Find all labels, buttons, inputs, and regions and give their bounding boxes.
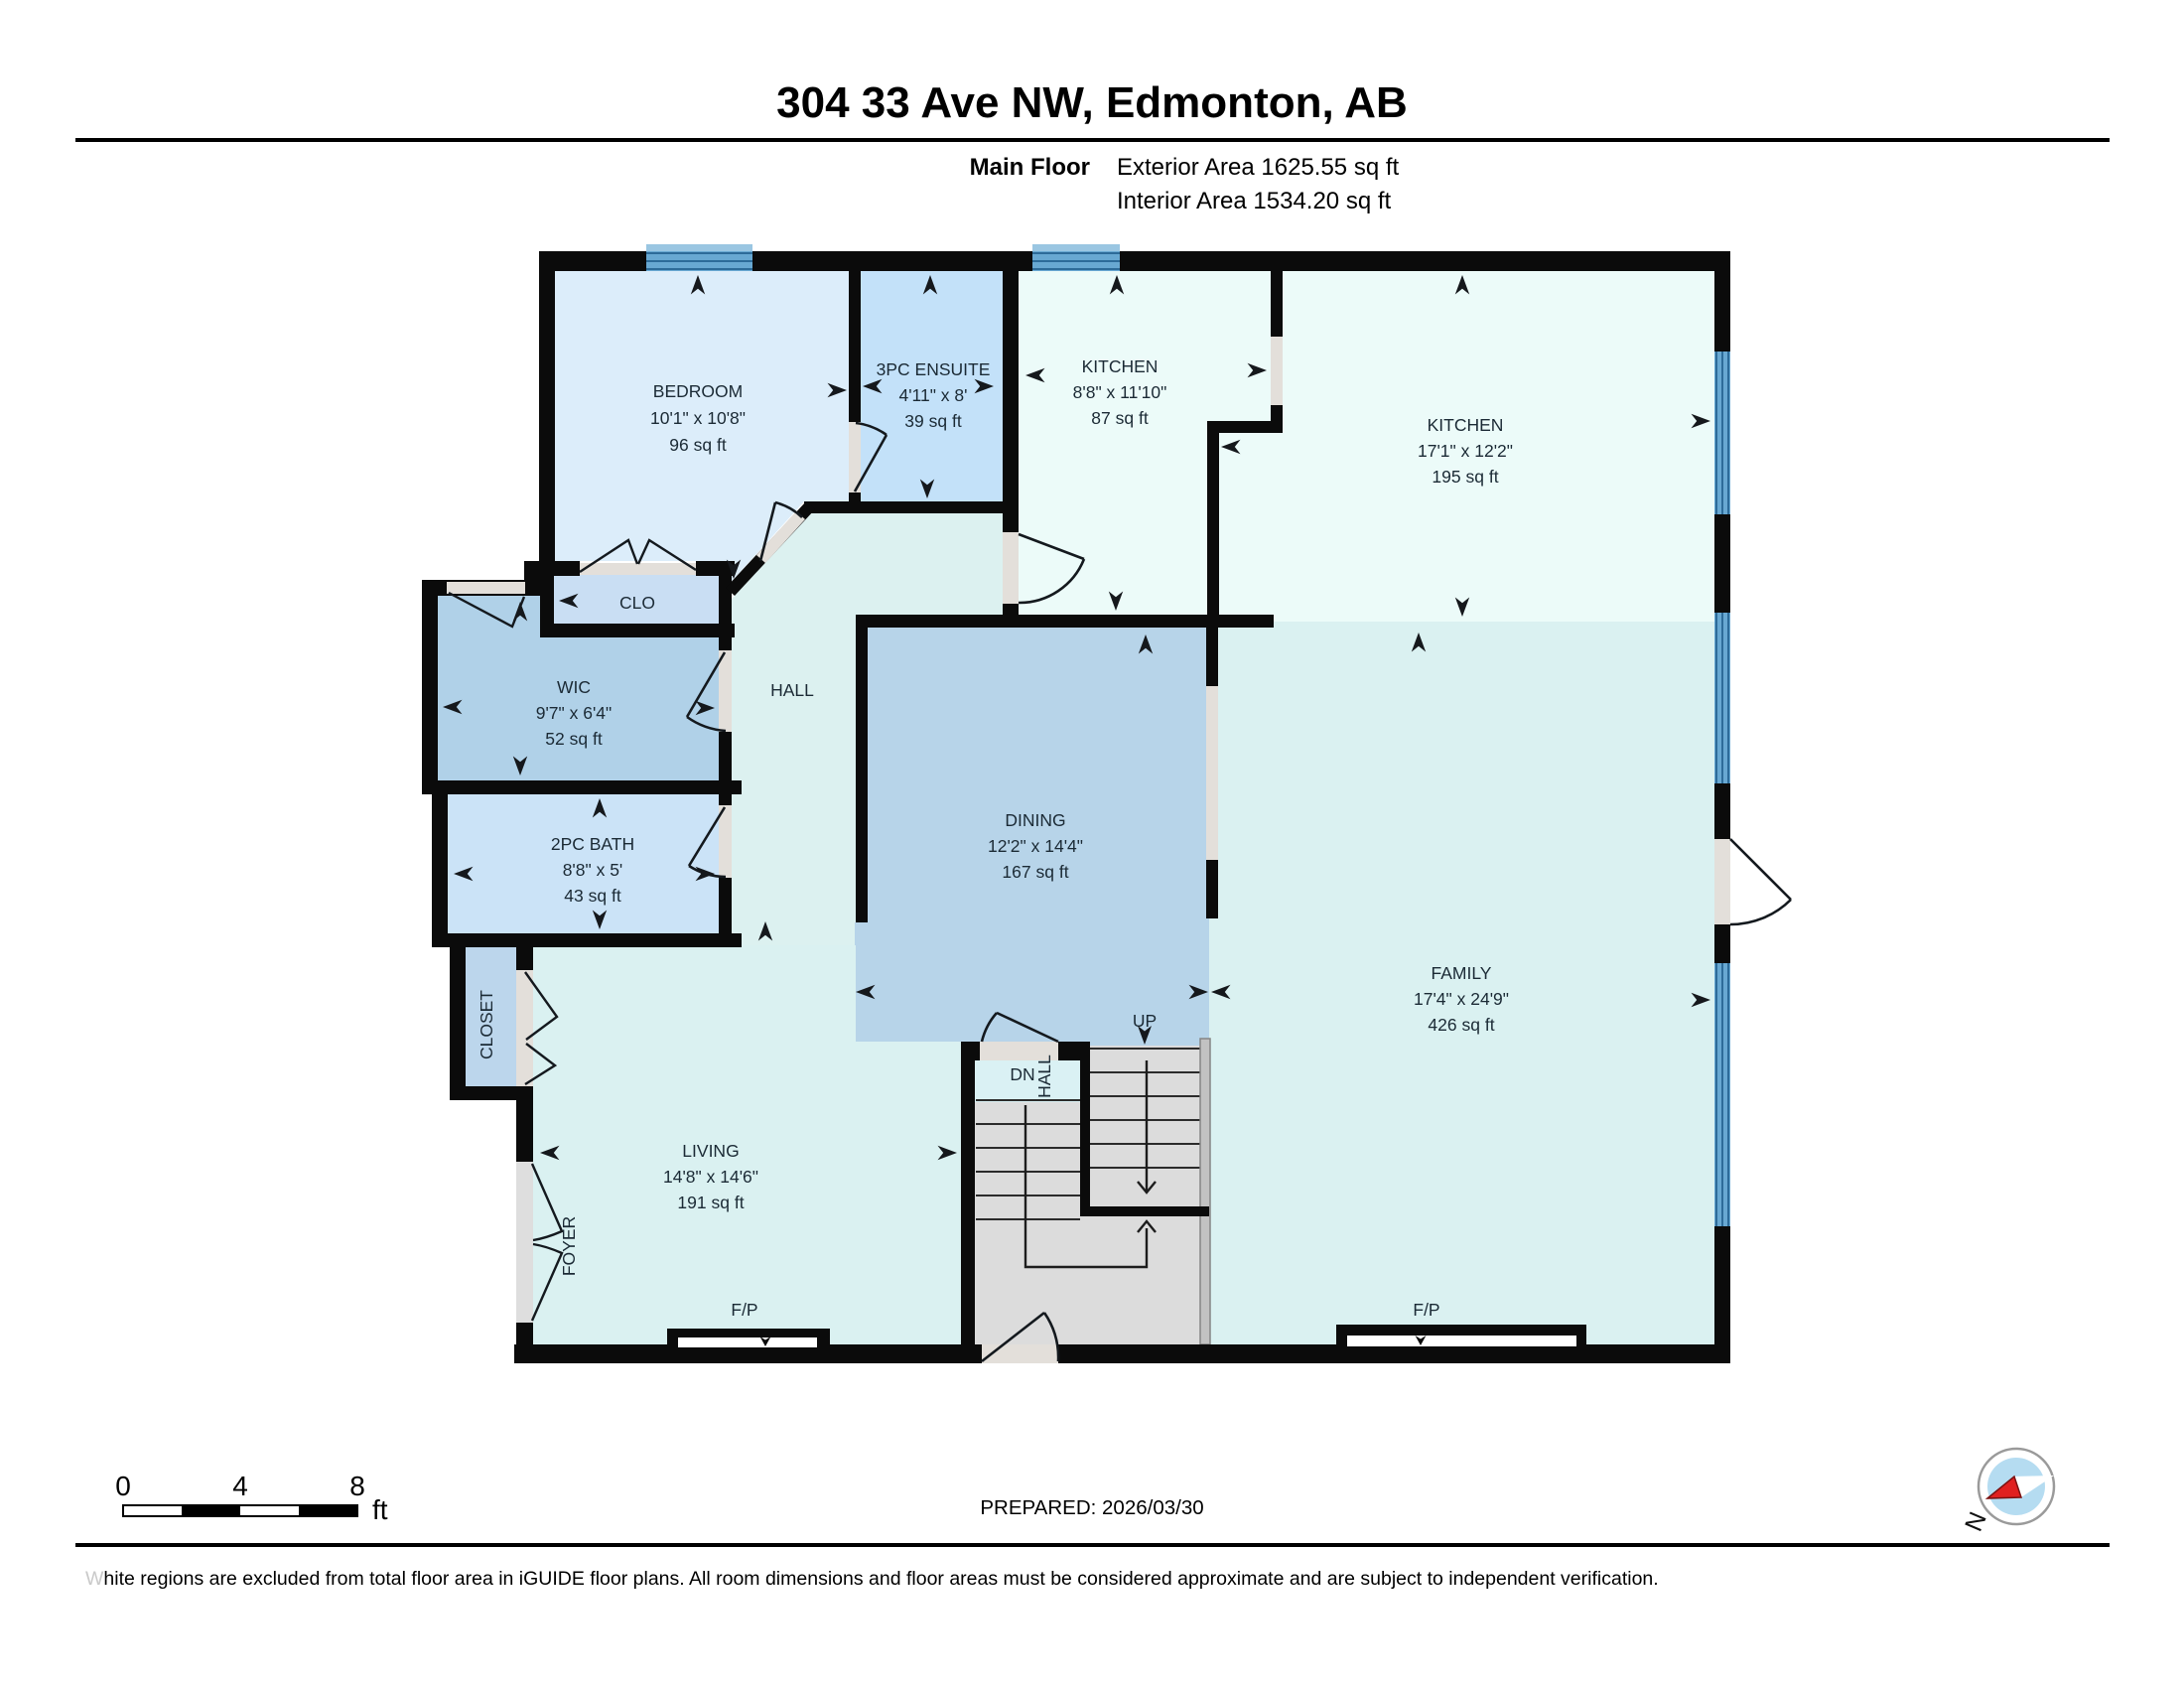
svg-text:Exterior Area 1625.55 sq ft: Exterior Area 1625.55 sq ft (1117, 154, 1400, 181)
svg-text:LIVING: LIVING (682, 1141, 739, 1161)
svg-text:8'8" x 5': 8'8" x 5' (563, 860, 623, 880)
svg-text:DN: DN (1010, 1064, 1034, 1084)
svg-text:52 sq ft: 52 sq ft (545, 729, 603, 749)
svg-text:17'1" x 12'2": 17'1" x 12'2" (1418, 441, 1513, 461)
svg-text:8'8" x 11'10": 8'8" x 11'10" (1073, 382, 1167, 402)
svg-text:3PC ENSUITE: 3PC ENSUITE (877, 359, 991, 379)
svg-text:Main Floor: Main Floor (970, 154, 1090, 181)
svg-text:9'7" x 6'4": 9'7" x 6'4" (536, 703, 613, 723)
svg-text:White regions are excluded fro: White regions are excluded from total fl… (85, 1568, 1659, 1590)
svg-text:4: 4 (232, 1471, 248, 1501)
svg-text:FOYER: FOYER (559, 1216, 579, 1276)
svg-text:CLOSET: CLOSET (477, 990, 496, 1059)
svg-text:17'4" x 24'9": 17'4" x 24'9" (1414, 989, 1509, 1009)
svg-text:4'11" x 8': 4'11" x 8' (898, 385, 967, 405)
svg-text:0: 0 (115, 1471, 131, 1501)
svg-text:87 sq ft: 87 sq ft (1091, 408, 1149, 428)
svg-text:DINING: DINING (1005, 810, 1065, 830)
svg-text:CLO: CLO (619, 593, 655, 613)
svg-text:F/P: F/P (1413, 1300, 1439, 1320)
svg-text:Interior Area 1534.20 sq ft: Interior Area 1534.20 sq ft (1117, 188, 1392, 214)
svg-text:KITCHEN: KITCHEN (1428, 415, 1504, 435)
svg-text:39 sq ft: 39 sq ft (904, 411, 962, 431)
svg-text:HALL: HALL (770, 680, 814, 700)
svg-text:2PC BATH: 2PC BATH (551, 834, 634, 854)
svg-text:KITCHEN: KITCHEN (1082, 356, 1159, 376)
svg-text:14'8" x 14'6": 14'8" x 14'6" (663, 1167, 758, 1187)
svg-text:WIC: WIC (557, 677, 591, 697)
svg-text:FAMILY: FAMILY (1432, 963, 1492, 983)
svg-text:167 sq ft: 167 sq ft (1002, 862, 1068, 882)
svg-text:BEDROOM: BEDROOM (653, 381, 743, 401)
svg-text:8: 8 (349, 1471, 365, 1501)
svg-text:HALL: HALL (1034, 1055, 1054, 1098)
svg-text:426 sq ft: 426 sq ft (1428, 1015, 1494, 1035)
svg-text:12'2" x 14'4": 12'2" x 14'4" (988, 836, 1083, 856)
svg-text:191 sq ft: 191 sq ft (677, 1193, 744, 1212)
svg-text:304 33 Ave NW, Edmonton, AB: 304 33 Ave NW, Edmonton, AB (776, 78, 1408, 127)
svg-text:43 sq ft: 43 sq ft (564, 886, 621, 906)
svg-text:F/P: F/P (731, 1300, 757, 1320)
svg-text:PREPARED: 2026/03/30: PREPARED: 2026/03/30 (980, 1496, 1203, 1519)
svg-text:96 sq ft: 96 sq ft (669, 435, 727, 455)
svg-text:ft: ft (372, 1494, 388, 1525)
svg-text:UP: UP (1133, 1011, 1157, 1031)
svg-text:10'1" x 10'8": 10'1" x 10'8" (650, 408, 746, 428)
svg-text:195 sq ft: 195 sq ft (1432, 467, 1498, 487)
